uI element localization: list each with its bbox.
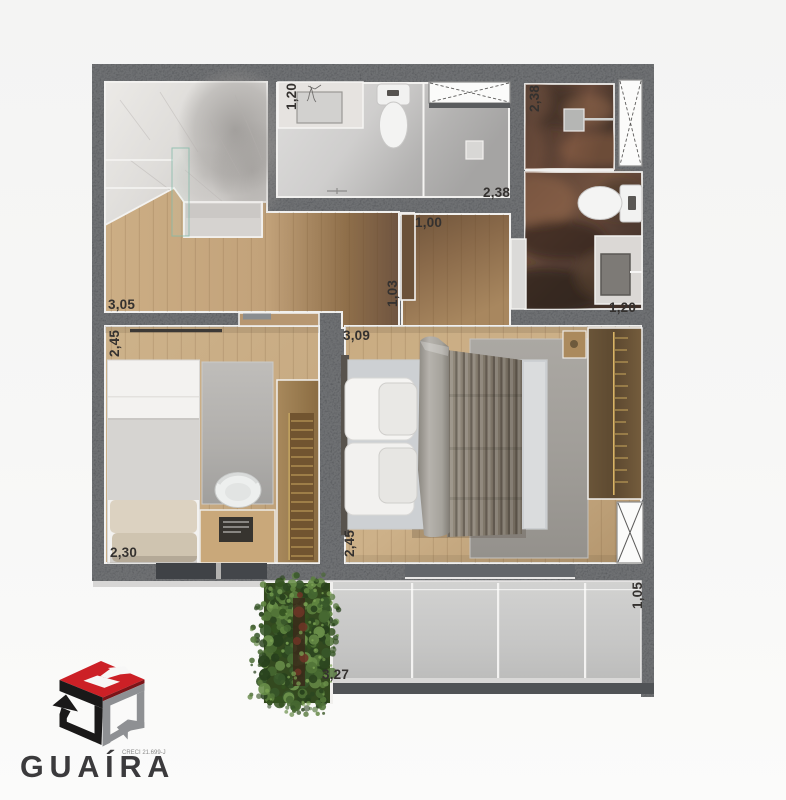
svg-text:3,27: 3,27 (322, 667, 349, 682)
svg-text:2,45: 2,45 (107, 330, 122, 357)
svg-text:2,45: 2,45 (342, 530, 357, 557)
svg-text:1,05: 1,05 (630, 582, 645, 609)
svg-text:GUAÍRA: GUAÍRA (20, 749, 175, 784)
svg-text:3,05: 3,05 (108, 297, 135, 312)
svg-text:1,00: 1,00 (415, 215, 442, 230)
svg-text:1,03: 1,03 (385, 280, 400, 307)
svg-text:1,20: 1,20 (284, 83, 299, 110)
svg-text:1,20: 1,20 (609, 300, 636, 315)
svg-text:3,09: 3,09 (343, 328, 370, 343)
svg-text:2,30: 2,30 (110, 545, 137, 560)
svg-text:2,38: 2,38 (483, 185, 510, 200)
svg-text:2,38: 2,38 (527, 85, 542, 112)
